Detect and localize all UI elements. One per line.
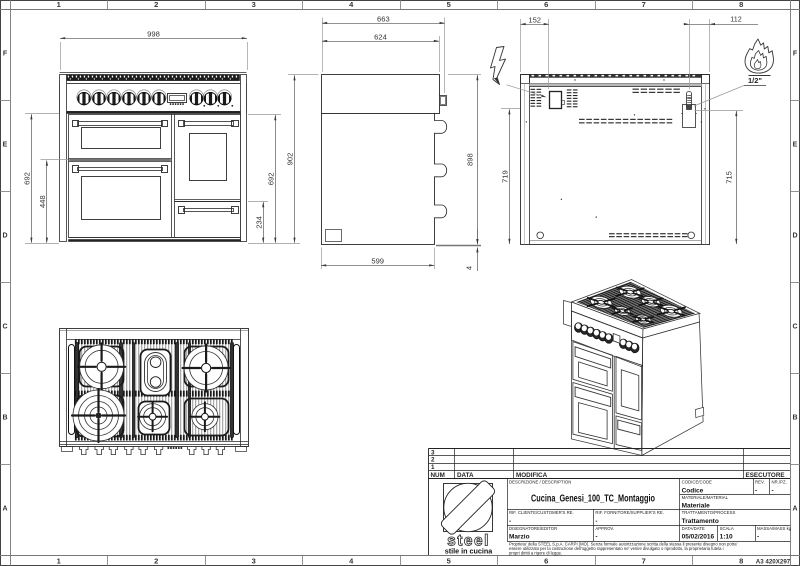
svg-text:NUM: NUM [431, 472, 445, 479]
svg-text:234: 234 [254, 216, 263, 229]
svg-text:6: 6 [544, 557, 548, 566]
svg-text:REV.: REV. [755, 479, 765, 484]
svg-text:A: A [2, 506, 7, 513]
svg-text:Trattamento: Trattamento [682, 518, 719, 525]
svg-text:1/2": 1/2" [748, 76, 762, 85]
svg-text:MATERIALE/MATERIAL: MATERIALE/MATERIAL [682, 495, 729, 500]
svg-text:692: 692 [23, 172, 32, 185]
svg-text:SCALA: SCALA [720, 526, 734, 531]
svg-text:Materiale: Materiale [682, 502, 711, 509]
svg-text:C: C [792, 324, 797, 331]
svg-text:6: 6 [544, 0, 548, 9]
svg-text:E: E [793, 142, 798, 149]
svg-text:A3 420X297: A3 420X297 [756, 559, 791, 566]
svg-text:2: 2 [154, 0, 158, 9]
svg-text:RIF. CLIENTE/CUSTOMER'S RE.: RIF. CLIENTE/CUSTOMER'S RE. [509, 510, 574, 515]
svg-text:F: F [3, 51, 8, 58]
svg-text:B: B [792, 415, 797, 422]
svg-text:112: 112 [730, 15, 741, 24]
svg-text:DISEGNATORE/EDITOR: DISEGNATORE/EDITOR [509, 526, 557, 531]
svg-text:7: 7 [642, 0, 646, 9]
svg-text:C: C [2, 324, 7, 331]
svg-text:8: 8 [739, 0, 743, 9]
svg-text:2: 2 [431, 457, 435, 464]
svg-text:-: - [772, 487, 774, 494]
svg-text:5: 5 [447, 557, 451, 566]
svg-text:-: - [509, 518, 511, 525]
svg-text:692: 692 [267, 173, 276, 186]
svg-text:1: 1 [431, 464, 435, 471]
svg-text:F: F [793, 51, 798, 58]
svg-text:2: 2 [154, 557, 158, 566]
svg-text:8: 8 [739, 557, 743, 566]
svg-text:898: 898 [466, 153, 475, 166]
svg-text:A: A [792, 506, 797, 513]
svg-text:1:10: 1:10 [720, 534, 733, 541]
svg-text:D: D [792, 233, 797, 240]
svg-text:D: D [2, 233, 7, 240]
svg-text:ESECUTORE: ESECUTORE [746, 472, 785, 479]
svg-text:E: E [3, 142, 8, 149]
svg-text:599: 599 [371, 257, 384, 266]
svg-text:-: - [757, 534, 759, 541]
svg-text:B: B [2, 415, 7, 422]
svg-text:RIF. FORNITORE/SUPPLIER'S RE.: RIF. FORNITORE/SUPPLIER'S RE. [595, 510, 664, 515]
svg-text:DATA/DATE: DATA/DATE [682, 526, 705, 531]
svg-text:MODIFICA: MODIFICA [516, 472, 548, 479]
svg-text:1: 1 [57, 557, 61, 566]
svg-text:DESCRIZIONE / DESCRIPTION: DESCRIZIONE / DESCRIPTION [509, 479, 571, 484]
svg-text:-: - [595, 534, 597, 541]
svg-text:3: 3 [431, 449, 435, 456]
svg-text:TRATTAMENTO/PROCESS: TRATTAMENTO/PROCESS [682, 510, 736, 515]
svg-text:APPROV.: APPROV. [595, 526, 614, 531]
svg-text:448: 448 [38, 195, 47, 208]
svg-text:05/02/2016: 05/02/2016 [682, 534, 715, 541]
svg-text:7: 7 [642, 557, 646, 566]
svg-text:Cucina_Genesi_100_TC_Montaggio: Cucina_Genesi_100_TC_Montaggio [531, 494, 655, 505]
svg-text:624: 624 [374, 32, 387, 41]
svg-text:663: 663 [377, 14, 390, 23]
svg-text:Marzio: Marzio [509, 534, 530, 541]
svg-text:MASSA/MASS kg: MASSA/MASS kg [757, 526, 792, 531]
svg-text:CODICE/CODE: CODICE/CODE [682, 479, 712, 484]
svg-text:902: 902 [286, 153, 295, 166]
svg-text:Codice: Codice [682, 487, 704, 494]
svg-text:stile in cucina: stile in cucina [445, 547, 494, 556]
svg-text:3: 3 [252, 557, 256, 566]
svg-text:propri diritti a rigore di leg: propri diritti a rigore di legge. [509, 550, 562, 555]
svg-text:1: 1 [57, 0, 61, 9]
svg-text:-: - [595, 518, 597, 525]
svg-text:998: 998 [147, 30, 160, 39]
svg-text:715: 715 [724, 171, 733, 184]
svg-text:-: - [755, 487, 757, 494]
svg-text:3: 3 [252, 0, 256, 9]
svg-text:5: 5 [447, 0, 451, 9]
svg-text:4: 4 [465, 266, 474, 270]
svg-text:NR./PZ.: NR./PZ. [772, 479, 787, 484]
svg-text:719: 719 [501, 170, 510, 183]
svg-text:DATA: DATA [457, 472, 474, 479]
svg-text:152: 152 [528, 15, 541, 24]
